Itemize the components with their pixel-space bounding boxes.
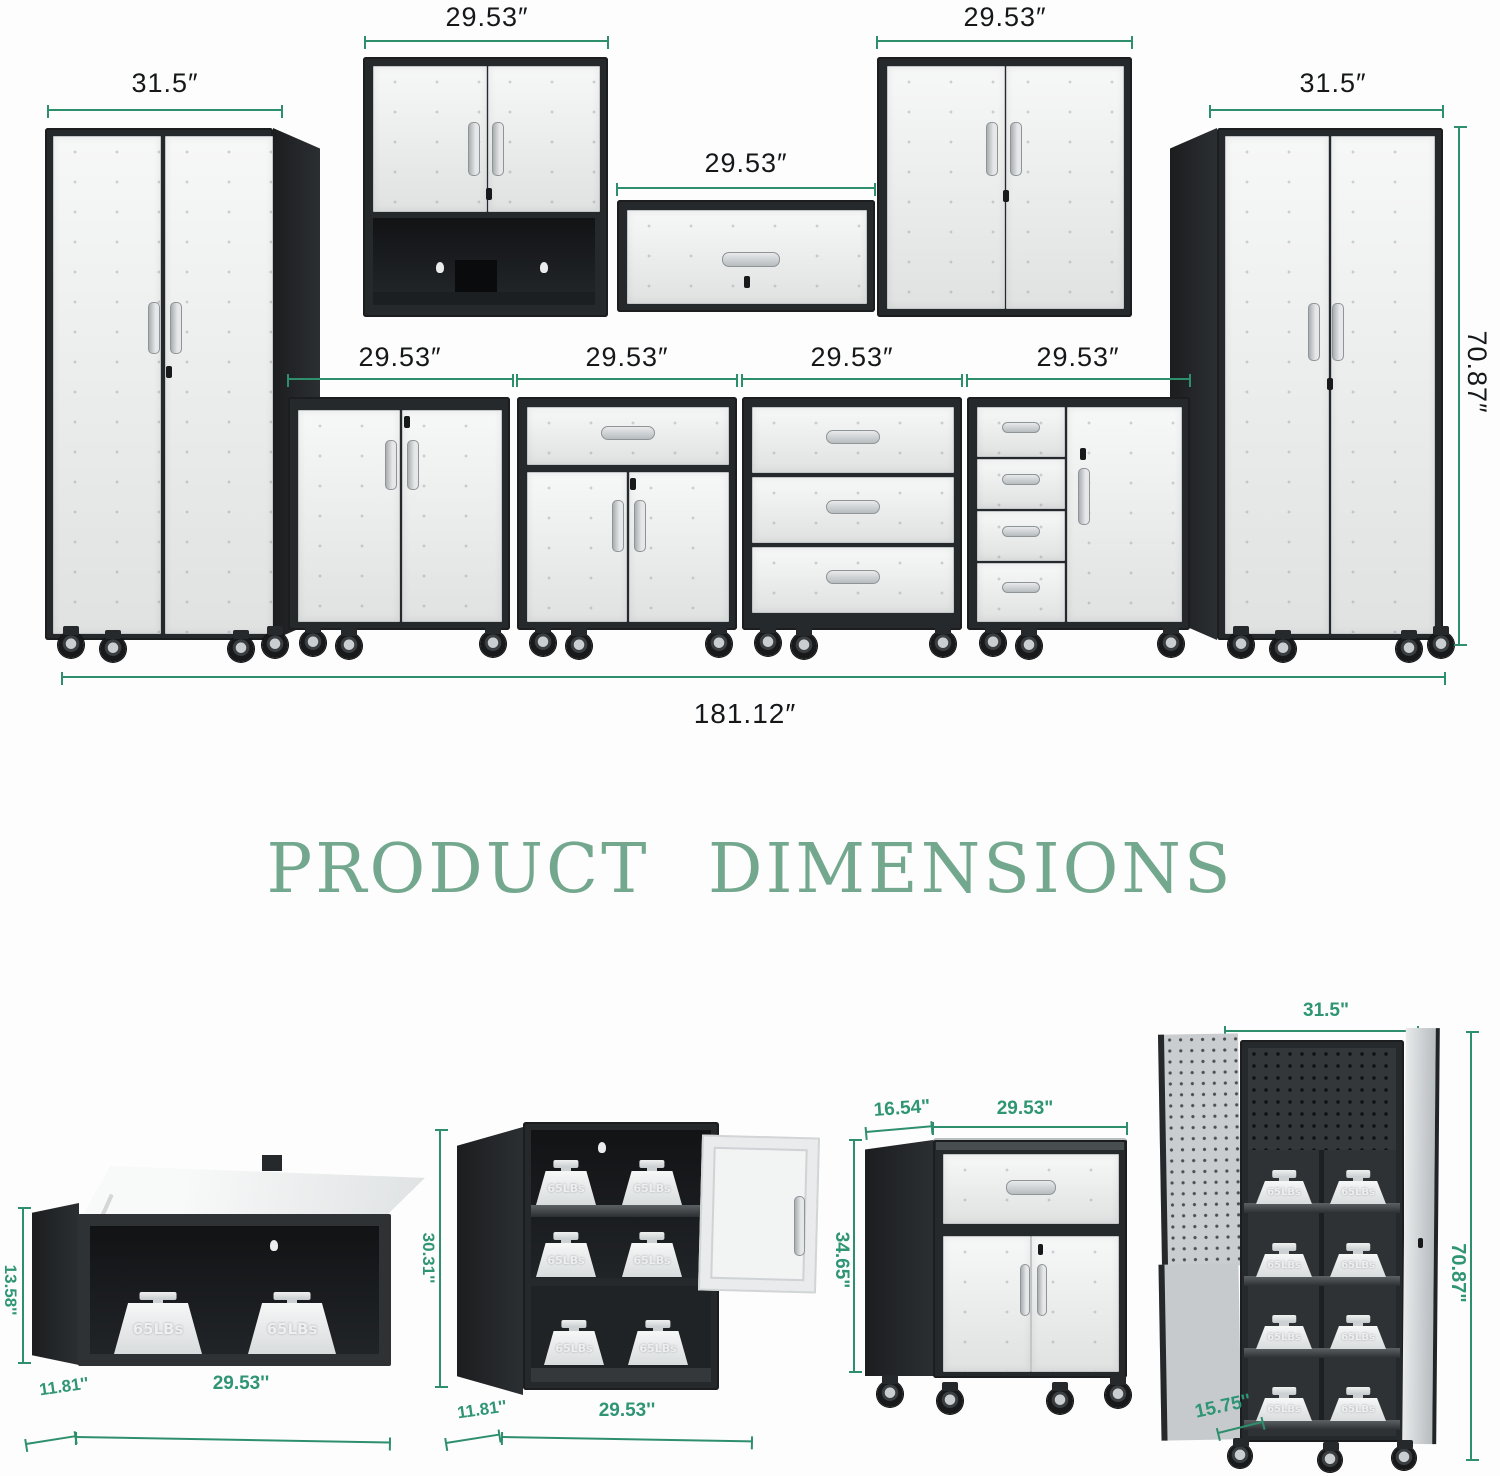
weight-65lbs: 65LBs	[628, 1320, 688, 1365]
drawer-handle	[1002, 582, 1040, 593]
weight-text: 65LBs	[536, 1171, 596, 1205]
dimension-line	[26, 1435, 76, 1445]
dimension-line	[439, 1130, 441, 1387]
cabinet-door	[488, 66, 600, 212]
cabinet-side-panel	[457, 1127, 523, 1395]
door-handle	[492, 122, 504, 176]
lock-icon	[166, 366, 172, 378]
dimension-line	[62, 676, 1445, 678]
caster-wheel	[1158, 631, 1184, 657]
dimension-label-wall2-depth: 11.81''	[439, 1394, 525, 1425]
weight-text: 65LBs	[114, 1303, 202, 1354]
top-lip	[936, 1142, 1124, 1150]
caster-wheel	[930, 631, 956, 657]
drawer-handle	[601, 426, 655, 440]
dimension-label-wall-right-width: 29.53″	[905, 2, 1105, 33]
dimension-label-wall2-width: 29.53''	[572, 1400, 682, 1422]
lock-icon	[744, 276, 750, 288]
dimension-line	[446, 1434, 500, 1444]
dimension-line	[502, 1436, 752, 1442]
caster-wheel	[937, 1388, 963, 1414]
caster-wheel	[1270, 636, 1296, 662]
dimension-label-base4-width: 29.53″	[1008, 342, 1148, 373]
cabinet-door	[1331, 136, 1435, 634]
drawer-handle	[826, 570, 880, 584]
open-door-right	[1402, 1028, 1440, 1444]
weight-65lbs: 65LBs	[536, 1160, 596, 1205]
keyhole-icon	[270, 1240, 278, 1251]
weight-65lbs: 65LBs	[1256, 1170, 1312, 1204]
lock-icon	[1038, 1244, 1043, 1255]
cabinet-door	[53, 136, 161, 634]
caster-wheel	[262, 632, 288, 658]
dimension-label-total-width: 181.12″	[645, 698, 845, 730]
door-handle	[468, 122, 480, 176]
caster-wheel	[706, 631, 732, 657]
cabinet-door	[1006, 66, 1124, 309]
caster-wheel	[1016, 633, 1042, 659]
drawer-handle	[826, 430, 880, 444]
shelf-lip	[373, 292, 595, 305]
door-handle	[794, 1196, 805, 1256]
caster-wheel	[791, 633, 817, 659]
dimension-label-base1-width: 29.53″	[330, 342, 470, 373]
weight-65lbs: 65LBs	[1330, 1170, 1386, 1204]
weight-text: 65LBs	[1256, 1254, 1312, 1277]
shelf	[1244, 1420, 1400, 1430]
dimension-line	[853, 1140, 855, 1372]
pegboard-back	[1248, 1048, 1396, 1150]
door-handle	[385, 440, 397, 490]
dimension-label-right-tall-width: 31.5″	[1233, 68, 1433, 99]
weight-text: 65LBs	[1330, 1254, 1386, 1277]
door-handle	[1010, 122, 1022, 176]
open-door-pegboard	[1158, 1033, 1242, 1266]
door-handle	[170, 302, 182, 354]
drawer-handle	[1006, 1180, 1056, 1195]
dimension-line	[1470, 1032, 1472, 1460]
dimension-line	[967, 378, 1190, 380]
dimension-label-base3-width: 29.53″	[782, 342, 922, 373]
lock-icon	[630, 478, 636, 490]
cabinet-side-panel	[865, 1140, 933, 1376]
center-divider	[1319, 1150, 1324, 1428]
cabinet-door	[943, 1236, 1031, 1372]
lid-latch	[262, 1155, 282, 1171]
dimension-label-base2-width: 29.53″	[557, 342, 697, 373]
cabinet-door	[1225, 136, 1329, 634]
page-title: PRODUCT DIMENSIONS	[0, 830, 1500, 909]
keyhole-icon	[598, 1142, 606, 1153]
caster-wheel	[1047, 1388, 1073, 1414]
door-handle	[1332, 303, 1344, 361]
weight-65lbs: 65LBs	[622, 1160, 682, 1205]
drawer-handle	[1002, 526, 1040, 537]
dimension-line	[1225, 1030, 1418, 1032]
weight-65lbs: 65LBs	[536, 1232, 596, 1277]
dimension-label-flip-depth: 11.81''	[23, 1372, 105, 1403]
weight-65lbs: 65LBs	[544, 1320, 604, 1365]
caster-wheel	[566, 633, 592, 659]
weight-text: 65LBs	[1330, 1326, 1386, 1349]
dimension-label-flip-height: 13.58''	[0, 1245, 20, 1335]
caster-wheel	[336, 633, 362, 659]
dimension-label-wall-left-width: 29.53″	[387, 2, 587, 33]
dimension-line	[365, 40, 608, 42]
weight-65lbs: 65LBs	[1330, 1387, 1386, 1421]
shelf	[1244, 1203, 1400, 1213]
lock-icon	[404, 416, 410, 428]
caster-wheel	[1396, 636, 1422, 662]
weight-65lbs: 65LBs	[1256, 1243, 1312, 1277]
weight-65lbs: 65LBs	[1256, 1315, 1312, 1349]
caster-wheel	[300, 630, 326, 656]
dimension-line	[877, 40, 1132, 42]
shelf	[531, 1205, 711, 1217]
cabinet-side-panel	[32, 1203, 79, 1365]
weight-text: 65LBs	[1330, 1398, 1386, 1421]
weight-text: 65LBs	[544, 1331, 604, 1365]
dimension-line	[48, 109, 282, 111]
lock-icon	[1418, 1238, 1423, 1248]
door-handle	[1037, 1264, 1047, 1316]
dimension-label-roll-width: 29.53"	[970, 1098, 1080, 1120]
caster-wheel	[980, 630, 1006, 656]
shelf	[1244, 1276, 1400, 1286]
dimension-line	[288, 378, 513, 380]
product-dimensions-image: 31.5″ 29.53″ 29.53″	[0, 0, 1500, 1476]
dimension-label-right-tall-height: 70.87″	[1464, 318, 1492, 426]
door-handle	[1020, 1264, 1030, 1316]
weight-text: 65LBs	[622, 1171, 682, 1205]
dimension-label-tall-width: 31.5"	[1271, 1000, 1381, 1022]
caster-wheel	[1428, 632, 1454, 658]
door-handle	[1078, 468, 1090, 525]
door-handle	[148, 302, 160, 354]
door-handle	[612, 500, 624, 552]
weight-65lbs: 65LBs	[622, 1232, 682, 1277]
dimension-line	[76, 1436, 390, 1443]
caster-wheel	[1318, 1448, 1342, 1472]
dimension-label-wall2-height: 30.31''	[418, 1213, 438, 1303]
lock-icon	[1080, 448, 1086, 460]
caster-wheel	[1105, 1382, 1131, 1408]
keyhole-icon	[436, 262, 444, 273]
dimension-line	[866, 1125, 932, 1133]
caster-wheel	[530, 630, 556, 656]
lock-icon	[1327, 378, 1333, 390]
weight-text: 65LBs	[248, 1303, 336, 1354]
caster-wheel	[755, 630, 781, 656]
weight-text: 65LBs	[1330, 1181, 1386, 1204]
cabinet-door	[887, 66, 1005, 309]
weight-text: 65LBs	[1256, 1181, 1312, 1204]
dimension-line	[742, 378, 962, 380]
weight-text: 65LBs	[622, 1243, 682, 1277]
lock-icon	[1003, 190, 1009, 202]
dimension-label-flip-width: 29.53''	[186, 1373, 296, 1395]
drawer-handle	[1002, 474, 1040, 485]
caster-wheel	[100, 636, 126, 662]
weight-65lbs: 65LBs	[1330, 1315, 1386, 1349]
door-handle	[986, 122, 998, 176]
stored-box	[455, 260, 497, 292]
caster-wheel	[228, 636, 254, 662]
dimension-line	[517, 378, 737, 380]
caster-wheel	[1392, 1446, 1416, 1470]
door-handle	[634, 500, 646, 552]
dimension-label-wall-middle-width: 29.53″	[646, 148, 846, 179]
weight-65lbs: 65LBs	[114, 1292, 202, 1354]
weight-65lbs: 65LBs	[1330, 1243, 1386, 1277]
keyhole-icon	[540, 262, 548, 273]
door-handle	[1308, 303, 1320, 361]
weight-text: 65LBs	[1256, 1326, 1312, 1349]
dimension-line	[1458, 127, 1460, 645]
weight-65lbs: 65LBs	[248, 1292, 336, 1354]
dimension-label-tall-height: 70.87"	[1447, 1225, 1469, 1321]
caster-wheel	[877, 1381, 903, 1407]
caster-wheel	[480, 631, 506, 657]
caster-wheel	[58, 632, 84, 658]
dimension-label-left-tall-width: 31.5″	[65, 68, 265, 99]
drawer-handle	[1002, 422, 1040, 433]
shelf	[1244, 1348, 1400, 1358]
door-handle	[407, 440, 419, 490]
dimension-label-roll-depth: 16.54"	[859, 1095, 944, 1123]
lock-icon	[486, 188, 492, 200]
weight-text: 65LBs	[536, 1243, 596, 1277]
door-handle	[722, 252, 780, 267]
caster-wheel	[1228, 1444, 1252, 1468]
drawer-handle	[826, 500, 880, 514]
dimension-line	[1210, 109, 1443, 111]
dimension-line	[933, 1126, 1127, 1128]
lower-lip	[531, 1368, 711, 1382]
dimension-label-roll-height: 34.65"	[832, 1214, 852, 1306]
weight-text: 65LBs	[628, 1331, 688, 1365]
caster-wheel	[1228, 632, 1254, 658]
dimension-line	[617, 187, 875, 189]
cabinet-door	[165, 136, 273, 634]
dimension-line	[22, 1208, 24, 1363]
